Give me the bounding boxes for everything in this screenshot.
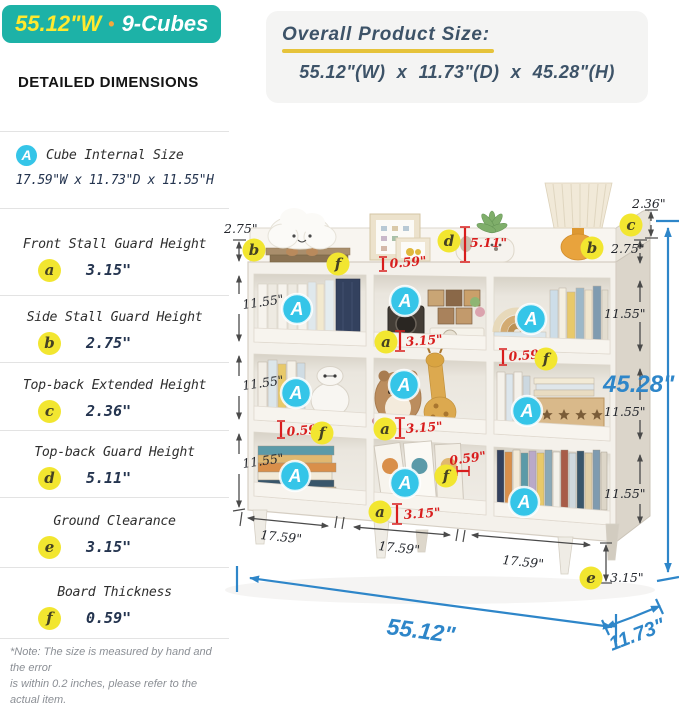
svg-text:A: A <box>290 299 304 319</box>
marker-b-icon: b <box>581 237 604 260</box>
svg-text:A: A <box>397 375 411 395</box>
svg-text:A: A <box>524 309 538 329</box>
product-diagram: 2.75" 11.55" 11.55" 11.55" 2.75" 2.36" 1… <box>0 0 679 668</box>
svg-text:A: A <box>289 383 303 403</box>
dim-total-height: 45.28" <box>602 371 675 398</box>
dim-front-guard: 3.15" <box>403 504 441 522</box>
svg-text:d: d <box>444 232 455 250</box>
dim-cube-height: 11.55" <box>604 486 646 501</box>
dim-front-guard: 3.15" <box>405 331 443 349</box>
svg-text:c: c <box>626 216 635 234</box>
cube-marker-icon: A <box>516 304 546 334</box>
marker-f-icon: f <box>311 422 334 445</box>
cube-marker-icon: A <box>282 294 312 324</box>
dim-top-back-guard: 5.11" <box>470 235 507 250</box>
cube-marker-icon: A <box>390 286 420 316</box>
marker-a-icon: a <box>375 331 398 354</box>
dim-total-width: 55.12" <box>385 613 457 648</box>
svg-text:A: A <box>517 492 531 512</box>
marker-a-icon: a <box>369 501 392 524</box>
svg-text:A: A <box>520 401 534 421</box>
dim-cube-width: 17.59" <box>260 527 303 546</box>
dim-cube-height: 11.55" <box>604 404 646 419</box>
marker-c-icon: c <box>620 214 643 237</box>
cube-marker-icon: A <box>281 378 311 408</box>
svg-text:A: A <box>398 291 412 311</box>
dim-board-thickness: 0.59" <box>389 253 427 271</box>
svg-text:e: e <box>586 569 596 587</box>
svg-text:a: a <box>381 333 391 351</box>
marker-f-icon: f <box>435 465 458 488</box>
marker-f-icon: f <box>327 253 350 276</box>
note-line2: is within 0.2 inches, please refer to th… <box>10 678 197 706</box>
dim-cube-height: 11.55" <box>604 306 646 321</box>
marker-b-icon: b <box>243 239 266 262</box>
svg-text:b: b <box>249 241 260 259</box>
dim-side-guard-right: 2.75" <box>610 241 645 256</box>
dim-front-guard: 3.15" <box>405 418 443 436</box>
marker-f-icon: f <box>535 348 558 371</box>
marker-a-icon: a <box>374 418 397 441</box>
cube-marker-icon: A <box>512 396 542 426</box>
cube-marker-icon: A <box>280 461 310 491</box>
cube-marker-icon: A <box>389 370 419 400</box>
cube-marker-icon: A <box>509 487 539 517</box>
svg-text:a: a <box>380 420 390 438</box>
marker-d-icon: d <box>438 230 461 253</box>
svg-text:a: a <box>375 503 385 521</box>
svg-text:A: A <box>288 466 302 486</box>
svg-text:A: A <box>398 473 412 493</box>
svg-text:b: b <box>587 239 598 257</box>
dim-ground-clearance: 3.15" <box>610 570 644 585</box>
dim-side-guard-left: 2.75" <box>223 221 258 236</box>
cube-marker-icon: A <box>390 468 420 498</box>
dim-cube-width: 17.59" <box>502 552 545 571</box>
dim-top-back-extended: 2.36" <box>631 196 666 211</box>
marker-e-icon: e <box>580 567 603 590</box>
